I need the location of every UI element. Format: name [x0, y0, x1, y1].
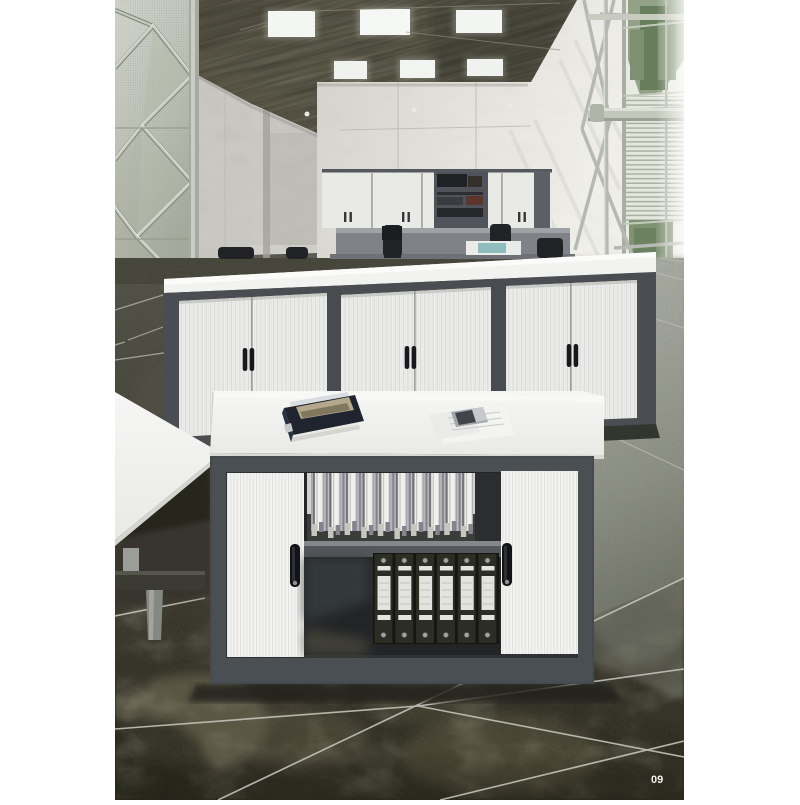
svg-text:09: 09	[651, 774, 663, 786]
